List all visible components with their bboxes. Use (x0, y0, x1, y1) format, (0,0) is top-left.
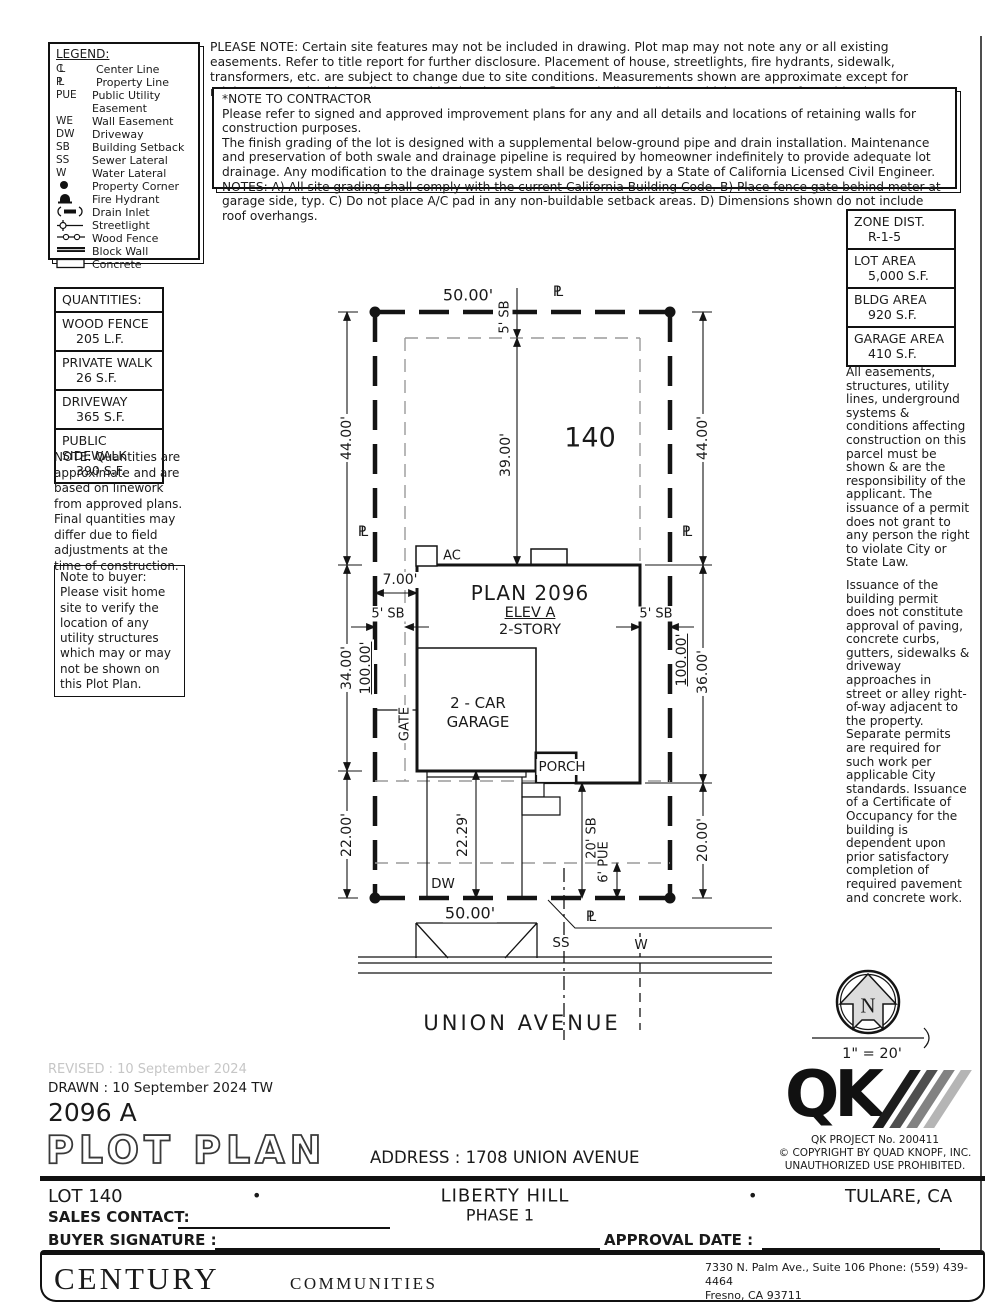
right-note-p1: All easements, structures, utility lines… (846, 366, 970, 570)
w-label: W (632, 937, 649, 953)
plot-plan-sheet: LEGEND: CLCenter Line PLProperty Line PU… (0, 0, 1006, 1305)
phase-label: PHASE 1 (466, 1206, 534, 1225)
legend-item-streetlight: Streetlight (56, 219, 192, 232)
legend-item-concrete: Concrete (56, 258, 192, 271)
brand-century: CENTURY (54, 1261, 220, 1297)
sb5-top-label: 5' SB (498, 298, 513, 335)
bullet-2: • (748, 1186, 757, 1205)
lot-label: LOT 140 (48, 1186, 123, 1207)
we-symbol: WE (56, 115, 92, 128)
qk-text: QK PROJECT No. 200411 © COPYRIGHT BY QUA… (775, 1134, 975, 1173)
lot-number: 140 (564, 423, 616, 454)
brand-communities: COMMUNITIES (290, 1274, 437, 1294)
plan-elev: ELEV A (505, 605, 556, 621)
qk-prohibited: UNAUTHORIZED USE PROHIBITED. (775, 1160, 975, 1173)
garage-area-row: GARAGE AREA410 S.F. (848, 328, 954, 365)
porch-steps (522, 783, 560, 815)
sales-contact-line[interactable] (178, 1208, 390, 1229)
sb-symbol: SB (56, 141, 92, 154)
street-name: UNION AVENUE (423, 1011, 620, 1035)
lot-area-row: LOT AREA5,000 S.F. (848, 250, 954, 289)
streetlight-icon (56, 219, 92, 232)
dim-44-right: 44.00' (695, 414, 711, 462)
pue6-label: 6' PUE (597, 839, 612, 885)
plan-story: 2-STORY (499, 622, 561, 638)
revised-line: REVISED : 10 September 2024 (48, 1062, 247, 1077)
contractor-note-p3: NOTES: A) All site grading shall comply … (222, 180, 947, 224)
address-line: ADDRESS : 1708 UNION AVENUE (370, 1148, 639, 1167)
contractor-note-p2: The finish grading of the lot is designe… (222, 136, 947, 180)
pl-label-bottom: PL (584, 909, 596, 925)
approval-date-line[interactable] (762, 1229, 940, 1250)
quantities-title: QUANTITIES: (56, 289, 162, 313)
block-wall-icon (56, 245, 92, 254)
porch-label: PORCH (536, 759, 587, 775)
footer-bar: CENTURY COMMUNITIES 7330 N. Palm Ave., S… (40, 1250, 985, 1302)
dim-22: 22.00' (339, 811, 355, 859)
right-note-p2: Issuance of the building permit does not… (846, 579, 970, 905)
wood-fence-row: WOOD FENCE205 L.F. (56, 313, 162, 352)
pl-leader (548, 900, 772, 928)
legend-box: LEGEND: CLCenter Line PLProperty Line PU… (48, 42, 200, 260)
legend-item-block-wall: Block Wall (56, 245, 192, 258)
legend-item-wood-fence: Wood Fence (56, 232, 192, 245)
bullet-1: • (252, 1186, 261, 1205)
ss-label: SS (550, 935, 571, 951)
city-label: TULARE, CA (845, 1186, 952, 1207)
ac-label: AC (443, 549, 461, 564)
pl-label-top: PL (551, 284, 563, 300)
north-letter: N (860, 994, 875, 1019)
divider-rule-top (40, 1176, 985, 1181)
garage-label-2: GARAGE (447, 713, 510, 731)
property-corner-icon (56, 180, 92, 190)
sb5-right-label: 5' SB (637, 607, 674, 622)
dim-44-left: 44.00' (339, 414, 355, 462)
sidewalk-street-lines (358, 957, 772, 973)
qk-copyright: © COPYRIGHT BY QUAD KNOPF, INC. (775, 1147, 975, 1160)
driveway-row: DRIVEWAY365 S.F. (56, 391, 162, 430)
legend-item-wall-easement: WEWall Easement (56, 115, 192, 128)
sb5-left-label: 5' SB (369, 607, 406, 622)
qk-logo-letters: QK (785, 1058, 879, 1132)
pue-symbol: PUE (56, 89, 92, 102)
drawn-line: DRAWN : 10 September 2024 TW (48, 1080, 273, 1096)
qk-project-number: QK PROJECT No. 200411 (775, 1134, 975, 1147)
legend-item-property-line: PLProperty Line (56, 76, 192, 89)
property-line-symbol: PL (56, 76, 96, 89)
qk-logo-block: QK QK PROJECT No. 200411 © COPYRIGHT BY … (775, 1064, 980, 1176)
contractor-note-p1: Please refer to signed and approved impr… (222, 107, 947, 136)
contractor-note-title: *NOTE TO CONTRACTOR (222, 92, 947, 107)
w-symbol: W (56, 167, 92, 180)
ss-symbol: SS (56, 154, 92, 167)
dim-20: 20.00' (695, 816, 711, 864)
legend-item-center-line: CLCenter Line (56, 63, 192, 76)
fire-hydrant-icon (56, 193, 92, 204)
dim-top-50: 50.00' (441, 286, 495, 305)
footer-address: 7330 N. Palm Ave., Suite 106 Phone: (559… (705, 1261, 983, 1303)
buyer-signature-label: BUYER SIGNATURE : (48, 1231, 217, 1249)
bldg-area-row: BLDG AREA920 S.F. (848, 289, 954, 328)
dw-label: DW (429, 876, 457, 892)
zone-table: ZONE DIST.R-1-5 LOT AREA5,000 S.F. BLDG … (846, 209, 956, 367)
legend-item-property-corner: Property Corner (56, 180, 192, 193)
dim-34: 34.00' (339, 644, 355, 692)
dim-100-right: 100.00' (674, 632, 690, 689)
legend-item-building-setback: SBBuilding Setback (56, 141, 192, 154)
dim-2229: 22.29' (455, 811, 471, 859)
legend-item-drain-inlet: Drain Inlet (56, 206, 192, 219)
legend-item-sewer-lateral: SSSewer Lateral (56, 154, 192, 167)
community-name: LIBERTY HILL (441, 1186, 570, 1207)
sheet-title: PLOT PLAN (46, 1128, 326, 1172)
sales-contact-label: SALES CONTACT: (48, 1208, 190, 1226)
dw-symbol: DW (56, 128, 92, 141)
legend-title: LEGEND: (56, 48, 192, 61)
dim-39: 39.00' (498, 431, 514, 479)
driveway-apron (416, 923, 537, 958)
footer-address-line1: 7330 N. Palm Ave., Suite 106 Phone: (559… (705, 1261, 983, 1289)
wood-fence-icon (56, 232, 92, 242)
chimney-projection (531, 549, 567, 566)
dim-7: 7.00' (380, 572, 419, 588)
footer-address-line2: Fresno, CA 93711 (705, 1289, 983, 1303)
plan-code: 2096 A (48, 1098, 137, 1127)
dim-100-left: 100.00' (358, 640, 374, 697)
concrete-icon (56, 258, 92, 269)
private-walk-row: PRIVATE WALK26 S.F. (56, 352, 162, 391)
right-notes: All easements, structures, utility lines… (846, 366, 970, 905)
buyer-note-box: Note to buyer: Please visit home site to… (54, 565, 185, 697)
plan-name: PLAN 2096 (471, 581, 590, 605)
dim-bottom-50: 50.00' (443, 904, 497, 923)
gate-label: GATE (398, 705, 413, 743)
zone-dist-row: ZONE DIST.R-1-5 (848, 211, 954, 250)
centerline-symbol: CL (56, 63, 96, 76)
ac-pad (416, 546, 437, 566)
legend-item-pue: PUEPublic Utility Easement (56, 89, 192, 115)
garage-label-1: 2 - CAR (450, 694, 506, 712)
pl-label-left: PL (356, 524, 368, 540)
approval-date-label: APPROVAL DATE : (604, 1231, 753, 1249)
dim-36: 36.00' (695, 648, 711, 696)
legend-item-fire-hydrant: Fire Hydrant (56, 193, 192, 206)
pl-label-right: PL (680, 524, 692, 540)
legend-item-driveway: DWDriveway (56, 128, 192, 141)
buyer-signature-line[interactable] (215, 1229, 600, 1250)
drain-inlet-icon (56, 206, 92, 217)
quantities-note: NOTE: Quantities are approximate and are… (54, 450, 184, 574)
legend-item-water-lateral: WWater Lateral (56, 167, 192, 180)
contractor-note-box: *NOTE TO CONTRACTOR Please refer to sign… (212, 87, 957, 189)
